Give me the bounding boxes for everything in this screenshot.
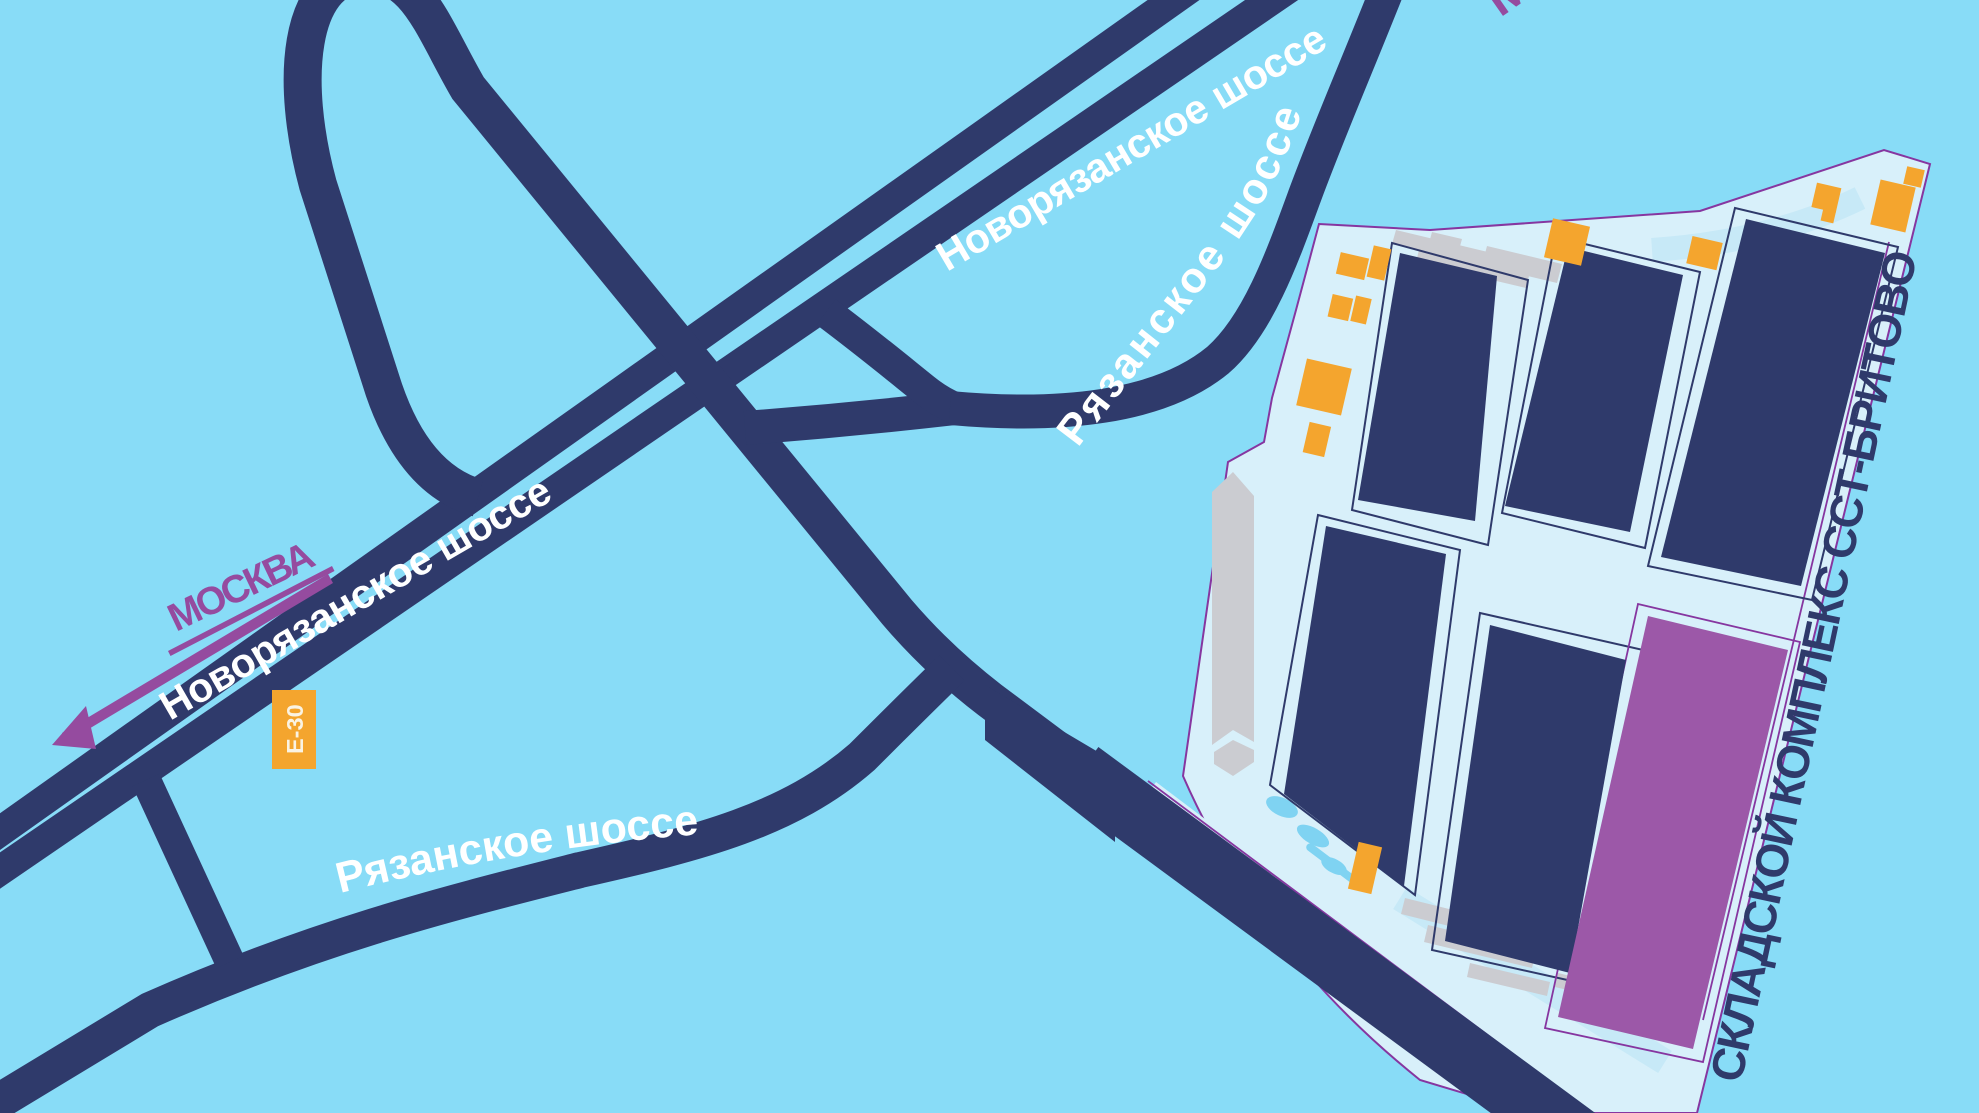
- svg-text:Е-30: Е-30: [282, 704, 308, 754]
